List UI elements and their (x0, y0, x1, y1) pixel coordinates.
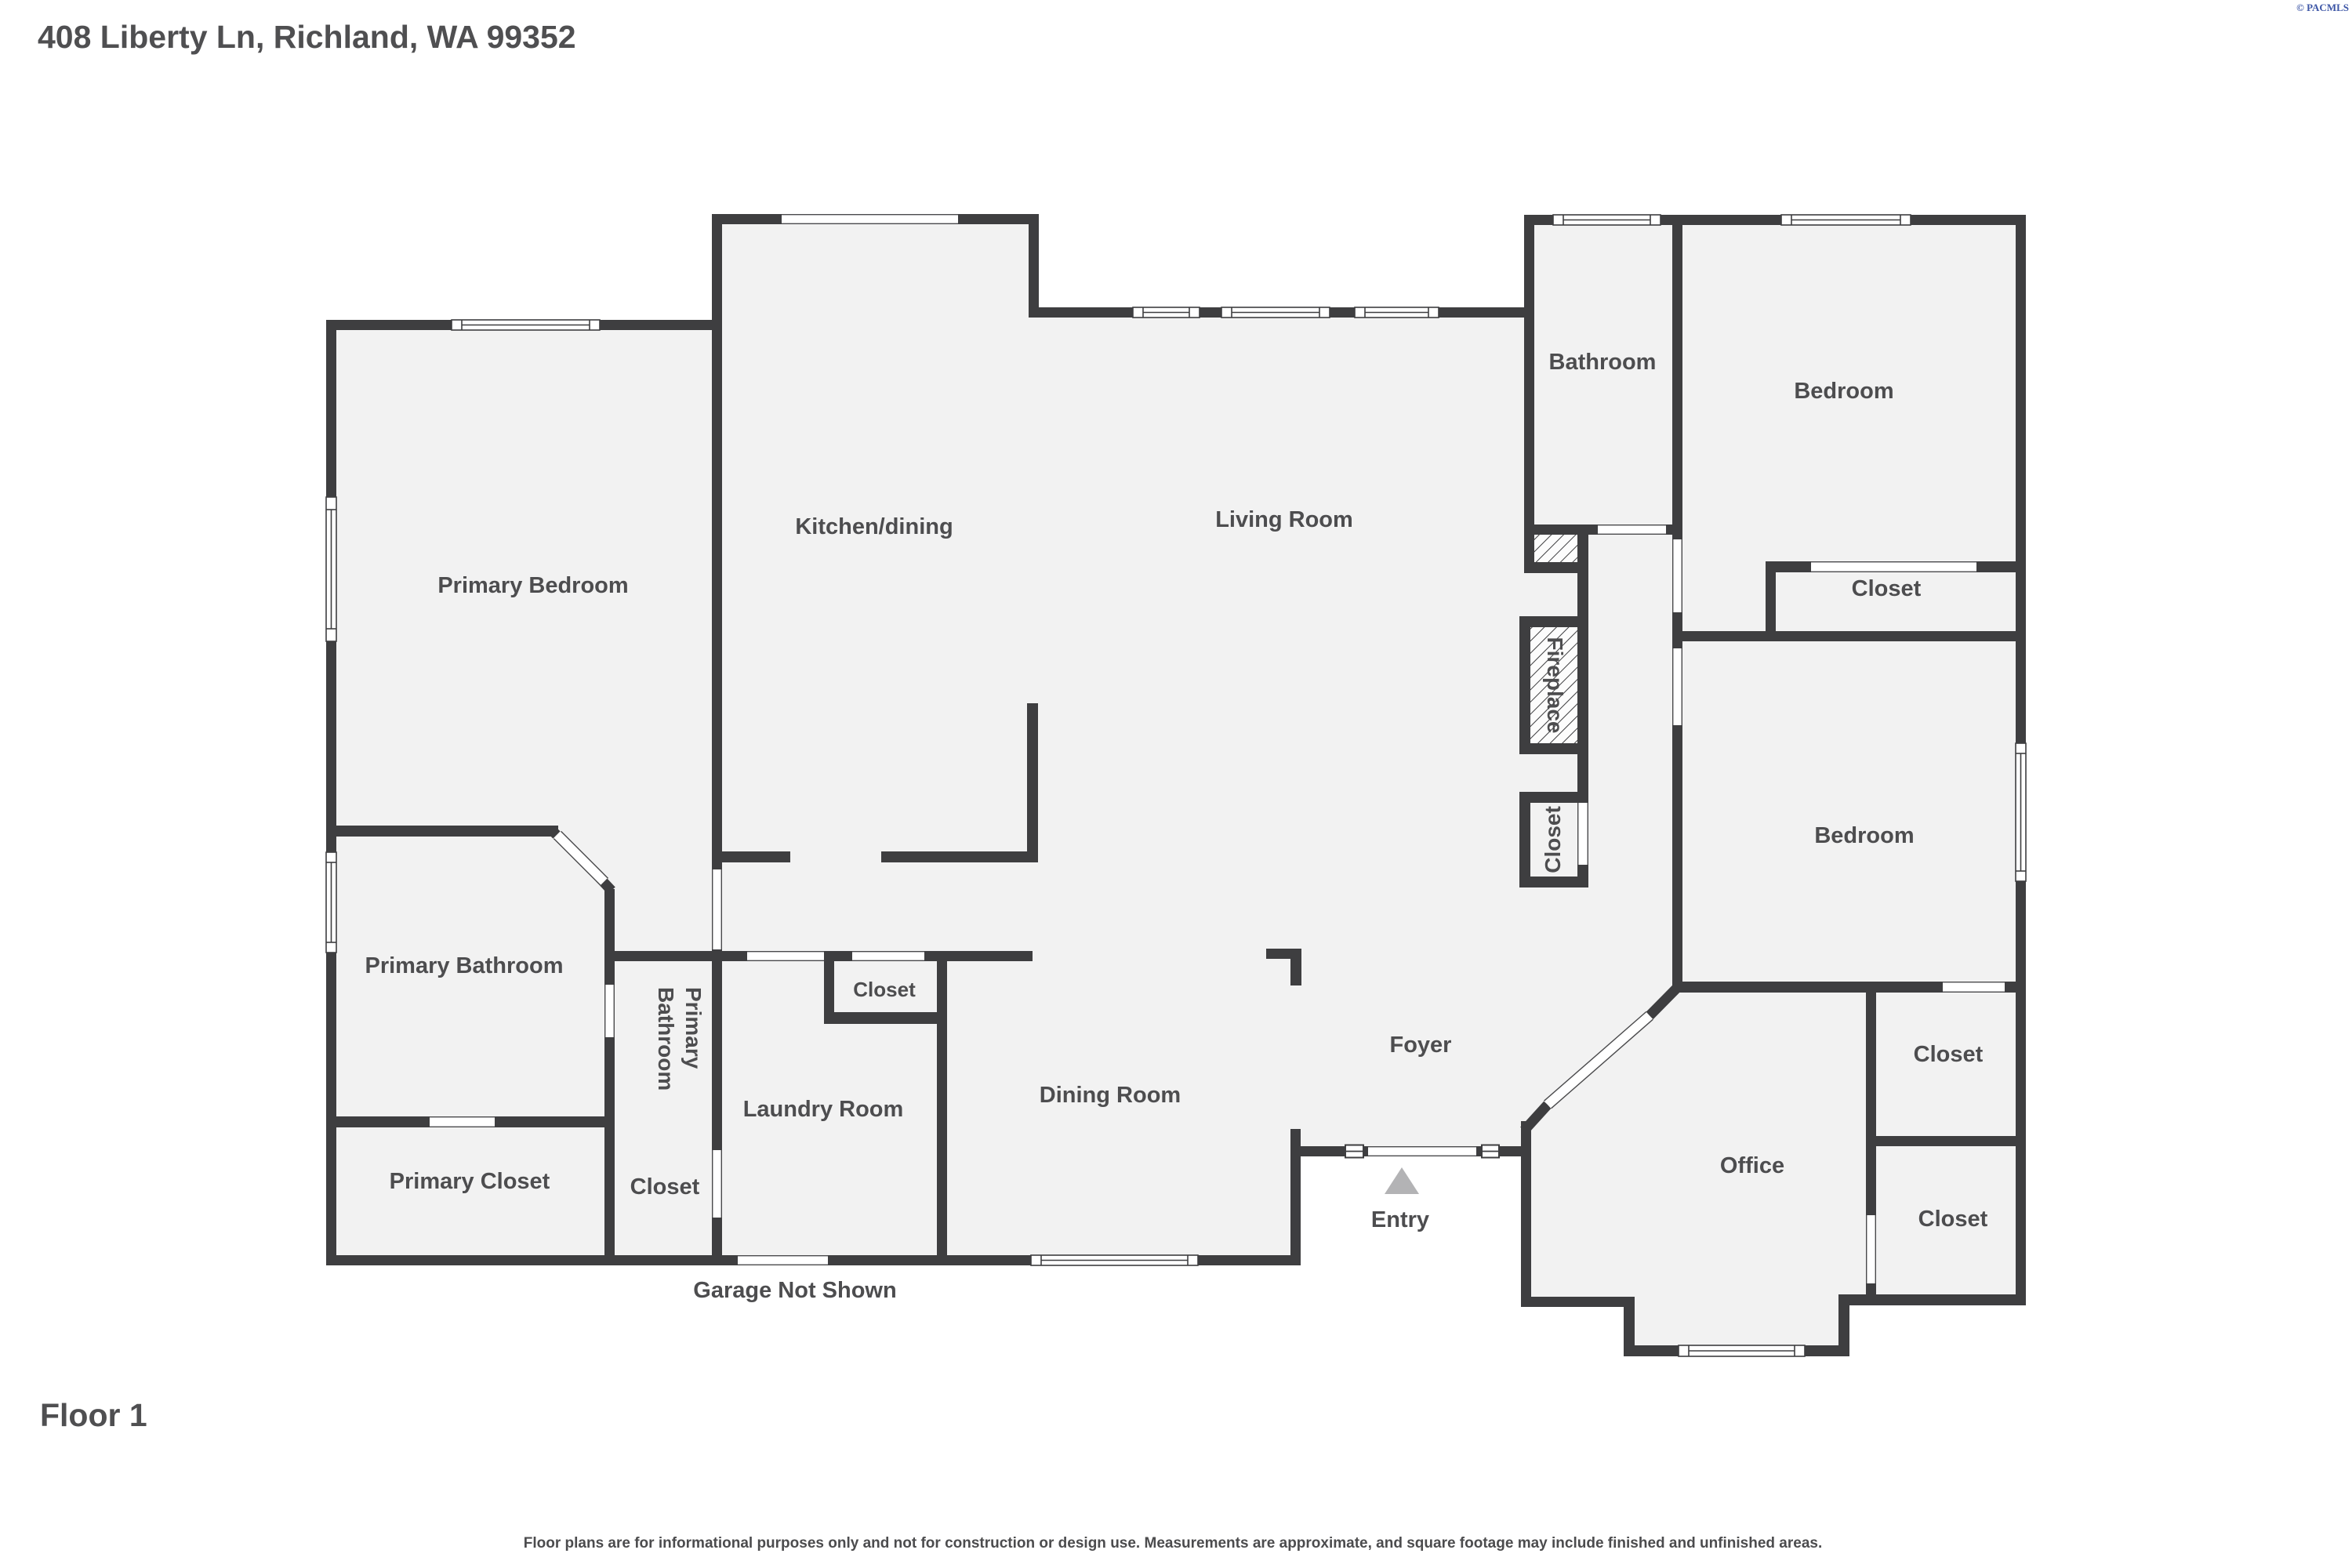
svg-text:Closet: Closet (1918, 1207, 1988, 1232)
svg-text:Closet: Closet (1914, 1042, 1984, 1067)
svg-text:Primary Bathroom: Primary Bathroom (365, 953, 563, 978)
svg-text:Entry: Entry (1371, 1207, 1429, 1232)
svg-text:Laundry Room: Laundry Room (743, 1097, 904, 1122)
svg-text:Garage Not Shown: Garage Not Shown (693, 1278, 896, 1303)
svg-text:Office: Office (1720, 1153, 1784, 1178)
svg-text:Closet: Closet (630, 1174, 700, 1200)
svg-text:Floor 1: Floor 1 (40, 1397, 147, 1433)
svg-text:Dining Room: Dining Room (1040, 1083, 1181, 1108)
svg-text:Fireplace: Fireplace (1543, 637, 1567, 734)
svg-text:Foyer: Foyer (1390, 1033, 1452, 1058)
svg-text:Bedroom: Bedroom (1794, 379, 1893, 404)
svg-text:Closet: Closet (1852, 576, 1922, 601)
svg-text:Primary Closet: Primary Closet (390, 1169, 550, 1194)
svg-text:Kitchen/dining: Kitchen/dining (795, 514, 953, 539)
svg-text:© PACMLS: © PACMLS (2296, 2, 2349, 13)
svg-text:Bathroom: Bathroom (1549, 350, 1657, 375)
svg-text:408 Liberty Ln, Richland, WA 9: 408 Liberty Ln, Richland, WA 99352 (38, 19, 576, 55)
svg-text:Living Room: Living Room (1215, 507, 1353, 532)
svg-text:Closet: Closet (1541, 806, 1565, 873)
svg-text:Primary Bedroom: Primary Bedroom (437, 573, 628, 598)
svg-text:Bedroom: Bedroom (1814, 823, 1914, 848)
svg-text:Closet: Closet (853, 978, 916, 1001)
svg-text:Floor plans are for informatio: Floor plans are for informational purpos… (524, 1535, 1822, 1552)
